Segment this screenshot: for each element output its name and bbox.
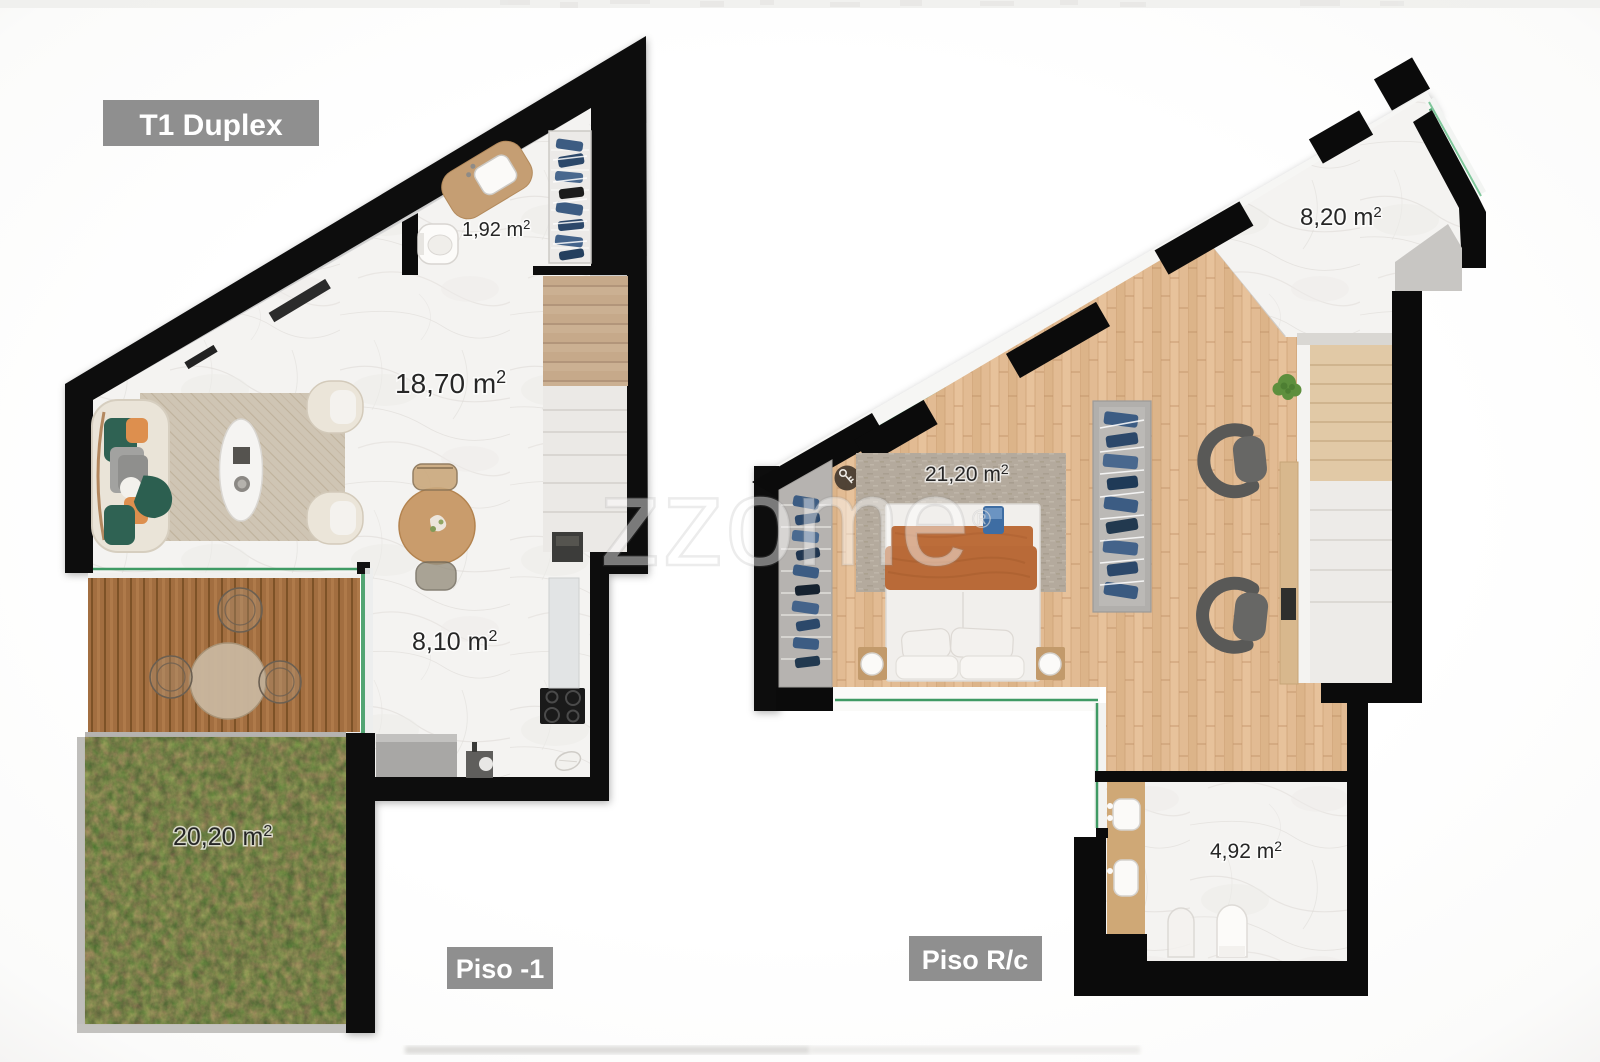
svg-text:zzome: zzome [599, 451, 970, 592]
svg-text:4,92 m2: 4,92 m2 [1210, 838, 1282, 863]
svg-text:18,70 m2: 18,70 m2 [395, 367, 506, 399]
svg-text:®: ® [972, 504, 991, 534]
svg-text:8,20 m2: 8,20 m2 [1300, 204, 1382, 231]
svg-text:T1 Duplex: T1 Duplex [139, 109, 283, 142]
svg-text:1,92 m2: 1,92 m2 [462, 217, 530, 241]
svg-text:Piso R/c: Piso R/c [922, 945, 1029, 975]
svg-text:Piso -1: Piso -1 [456, 954, 545, 984]
svg-text:20,20 m2: 20,20 m2 [173, 823, 272, 851]
svg-text:8,10 m2: 8,10 m2 [412, 628, 497, 656]
